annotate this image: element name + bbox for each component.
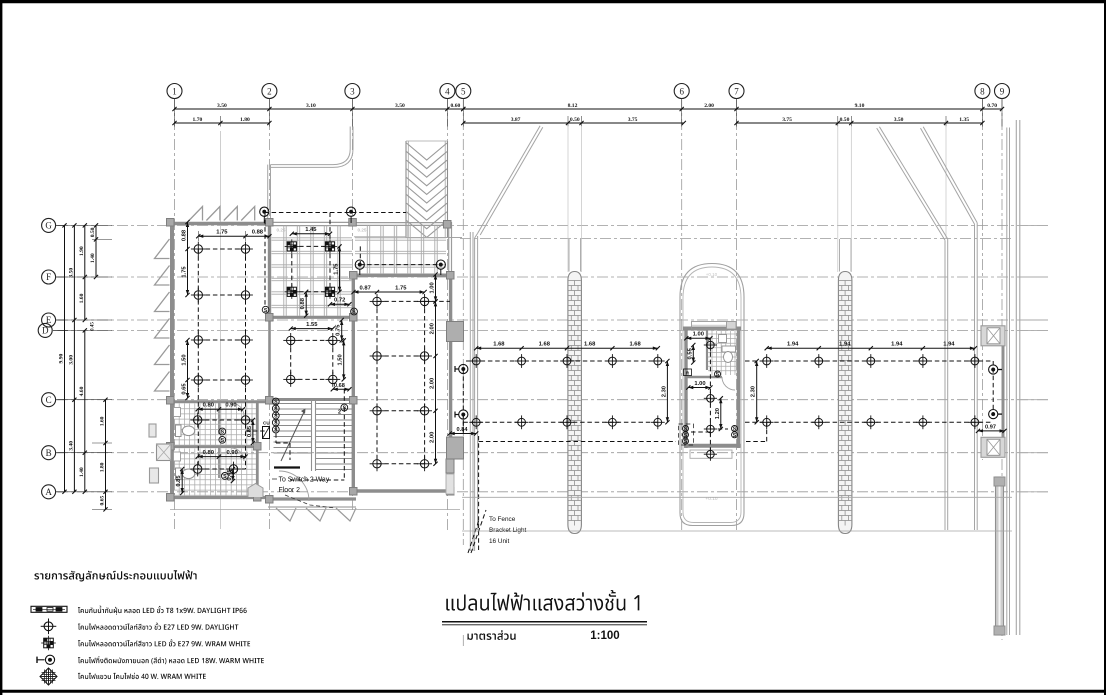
svg-text:C: C xyxy=(46,395,52,405)
svg-text:S: S xyxy=(684,439,688,445)
svg-text:2: 2 xyxy=(267,86,272,96)
svg-text:1.75: 1.75 xyxy=(216,230,228,236)
svg-text:0.68: 0.68 xyxy=(334,383,345,389)
svg-text:9: 9 xyxy=(1000,86,1005,96)
svg-text:0.80: 0.80 xyxy=(203,450,214,456)
svg-text:0.50: 0.50 xyxy=(90,227,96,237)
svg-text:S: S xyxy=(716,372,720,378)
svg-text:3.50: 3.50 xyxy=(894,117,904,123)
svg-text:0.97: 0.97 xyxy=(985,425,996,431)
svg-text:0.45: 0.45 xyxy=(227,469,233,481)
svg-text:1.94: 1.94 xyxy=(787,342,799,348)
svg-text:B: B xyxy=(46,448,52,458)
svg-text:1.60: 1.60 xyxy=(100,416,106,426)
svg-text:16 Unit: 16 Unit xyxy=(489,538,509,545)
svg-text:1.35: 1.35 xyxy=(959,117,969,123)
svg-text:1.00: 1.00 xyxy=(694,381,705,387)
svg-text:0.70: 0.70 xyxy=(987,103,997,109)
svg-text:3.75: 3.75 xyxy=(628,117,638,123)
svg-text:1: 1 xyxy=(172,86,177,96)
svg-text:1.50: 1.50 xyxy=(182,354,188,365)
svg-text:0.85: 0.85 xyxy=(176,475,182,487)
svg-text:8.12: 8.12 xyxy=(568,103,578,109)
svg-text:1.68: 1.68 xyxy=(584,342,596,348)
svg-text:1.75: 1.75 xyxy=(182,266,188,278)
svg-text:A: A xyxy=(45,487,52,497)
svg-text:1.00: 1.00 xyxy=(430,282,436,293)
svg-text:1.94: 1.94 xyxy=(891,342,903,348)
svg-text:0.55: 0.55 xyxy=(687,347,693,359)
svg-text:0.45: 0.45 xyxy=(91,322,96,331)
svg-text:0.84: 0.84 xyxy=(457,427,469,433)
svg-text:0.88: 0.88 xyxy=(182,229,188,241)
svg-text:3.87: 3.87 xyxy=(511,117,521,123)
svg-text:To Fence: To Fence xyxy=(489,516,516,523)
svg-text:1.94: 1.94 xyxy=(839,342,851,348)
svg-text:8: 8 xyxy=(980,86,985,96)
svg-text:S: S xyxy=(221,430,225,436)
svg-text:0.90: 0.90 xyxy=(225,403,236,409)
svg-text:3.50: 3.50 xyxy=(217,103,227,109)
svg-text:2: 2 xyxy=(338,410,341,416)
svg-text:1.94: 1.94 xyxy=(943,342,955,348)
svg-text:1:100: 1:100 xyxy=(590,630,619,642)
svg-text:3: 3 xyxy=(350,86,355,96)
svg-text:1.68: 1.68 xyxy=(539,342,551,348)
svg-text:2.00: 2.00 xyxy=(704,103,714,109)
svg-text:2.00: 2.00 xyxy=(430,323,436,334)
svg-text:2.30: 2.30 xyxy=(751,386,757,397)
svg-text:3.75: 3.75 xyxy=(782,117,792,123)
svg-text:1.20: 1.20 xyxy=(715,408,721,419)
svg-text:2.00: 2.00 xyxy=(430,378,436,389)
svg-text:+0.10: +0.10 xyxy=(706,272,718,277)
svg-text:S: S xyxy=(221,438,225,444)
svg-text:2.30: 2.30 xyxy=(661,386,667,397)
svg-text:1.75: 1.75 xyxy=(334,263,340,275)
svg-text:S: S xyxy=(264,308,268,314)
svg-text:0.65: 0.65 xyxy=(182,383,188,395)
svg-text:1.40: 1.40 xyxy=(90,253,96,263)
svg-text:0.25: 0.25 xyxy=(277,228,286,233)
svg-text:1.60: 1.60 xyxy=(79,293,85,303)
svg-text:9.10: 9.10 xyxy=(855,103,865,109)
svg-text:0.87: 0.87 xyxy=(360,285,371,291)
svg-text:G: G xyxy=(45,221,52,231)
svg-text:F: F xyxy=(46,272,51,282)
svg-text:0.25: 0.25 xyxy=(358,228,367,233)
svg-text:0.65: 0.65 xyxy=(100,496,106,506)
svg-text:1.40: 1.40 xyxy=(79,467,85,477)
svg-text:Floor 2: Floor 2 xyxy=(279,487,301,494)
svg-text:1.80: 1.80 xyxy=(240,117,250,123)
svg-text:3.50: 3.50 xyxy=(68,268,74,278)
svg-text:0.88: 0.88 xyxy=(300,297,306,309)
svg-text:1.00: 1.00 xyxy=(693,332,704,338)
svg-text:3.50: 3.50 xyxy=(395,103,405,109)
svg-text:S: S xyxy=(733,433,737,439)
svg-text:0.75: 0.75 xyxy=(336,324,342,336)
svg-text:1.45: 1.45 xyxy=(305,227,317,233)
svg-text:1.70: 1.70 xyxy=(193,117,203,123)
svg-text:S: S xyxy=(352,310,356,316)
svg-text:1.75: 1.75 xyxy=(395,285,407,291)
svg-text:1.80: 1.80 xyxy=(100,462,106,472)
svg-text:3.10: 3.10 xyxy=(306,103,316,109)
svg-text:R: R xyxy=(686,370,689,375)
svg-text:1.90: 1.90 xyxy=(79,246,85,256)
svg-text:0.50: 0.50 xyxy=(840,117,850,123)
svg-text:S: S xyxy=(274,428,278,434)
svg-text:0.85: 0.85 xyxy=(247,425,253,437)
svg-text:1.55: 1.55 xyxy=(306,322,318,328)
svg-text:3.40: 3.40 xyxy=(68,441,74,451)
svg-text:2.00: 2.00 xyxy=(430,432,436,443)
svg-text:5: 5 xyxy=(461,86,466,96)
svg-text:0.50: 0.50 xyxy=(570,117,580,123)
svg-text:4: 4 xyxy=(445,86,450,96)
svg-text:7: 7 xyxy=(734,86,739,96)
svg-text:Bracket Light: Bracket Light xyxy=(489,527,527,534)
svg-text:D: D xyxy=(42,326,49,336)
svg-text:6: 6 xyxy=(679,86,684,96)
svg-text:0.90: 0.90 xyxy=(227,450,238,456)
svg-text:1.68: 1.68 xyxy=(629,342,641,348)
svg-text:9.90: 9.90 xyxy=(59,354,65,364)
svg-text:0.80: 0.80 xyxy=(203,403,214,409)
svg-text:0.60: 0.60 xyxy=(451,103,461,109)
svg-text:3.00: 3.00 xyxy=(68,355,74,365)
svg-text:0.88: 0.88 xyxy=(252,230,264,236)
svg-text:0.72: 0.72 xyxy=(334,298,345,304)
svg-text:4.60: 4.60 xyxy=(79,386,85,396)
svg-text:CU: CU xyxy=(263,421,270,426)
svg-text:1.50: 1.50 xyxy=(338,354,344,365)
svg-text:1.68: 1.68 xyxy=(493,342,505,348)
